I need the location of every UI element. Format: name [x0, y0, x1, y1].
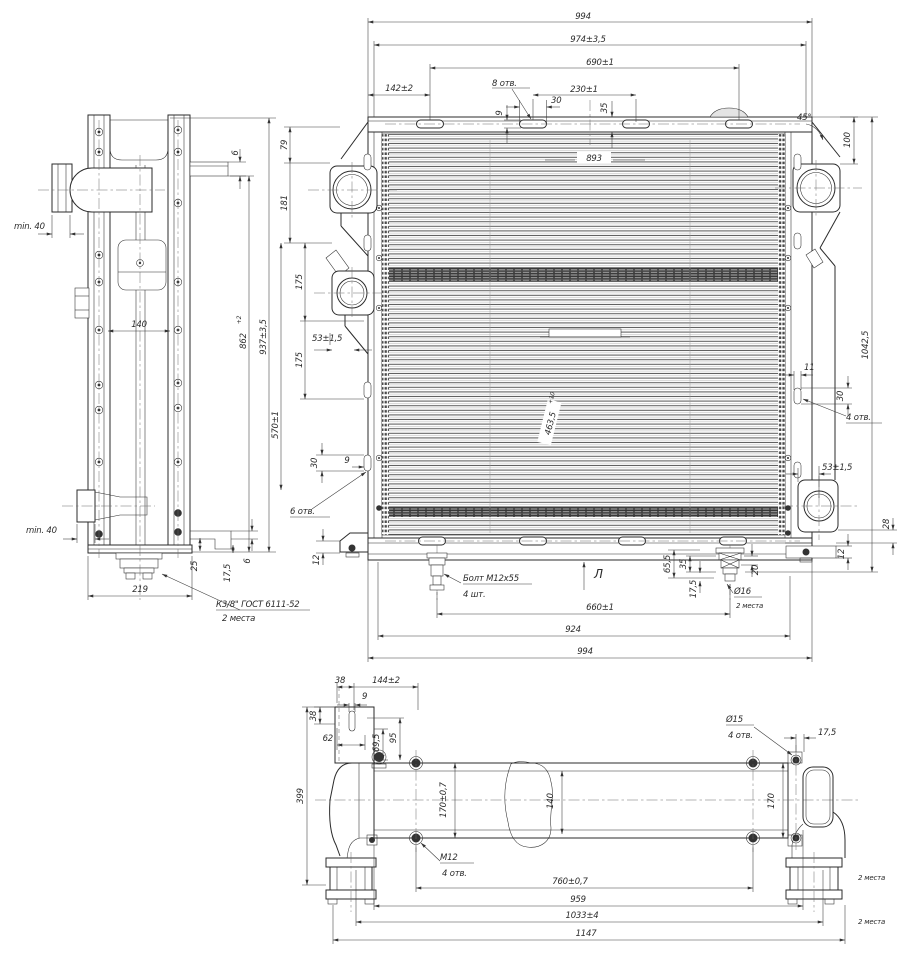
note-4-holes: 4 отв. — [846, 413, 871, 423]
note-bolt: Болт М12х55 — [463, 574, 519, 584]
dim-690: 690±1 — [586, 58, 614, 68]
note-6-holes: 6 отв. — [290, 507, 315, 517]
dim-142: 142±2 — [385, 84, 413, 94]
dim-1147: 1147 — [576, 929, 598, 939]
dim-175-b: 175 — [295, 352, 305, 368]
dim-6-bottom: 6 — [243, 558, 253, 564]
dim-6-top: 6 — [231, 150, 241, 156]
side-view-top-bracket — [190, 162, 228, 176]
bottom-view-bolts — [410, 750, 760, 852]
note-m12-holes: 4 отв. — [442, 869, 467, 879]
angled-tab — [806, 249, 823, 268]
dim-35-bottom: 35 — [679, 559, 689, 569]
dim-12-left: 12 — [312, 555, 322, 565]
dim-9-left: 9 — [344, 456, 349, 466]
dim-30-slot: 30 — [551, 96, 561, 106]
note-dia15-holes: 4 отв. — [728, 731, 753, 741]
dim-170-left: 170±0,7 — [439, 781, 449, 817]
dim-140-bv: 140 — [546, 793, 556, 809]
front-view-right-brackets — [775, 122, 862, 562]
note-2-places-a: 2 места — [858, 874, 885, 882]
side-view-top-pipe — [52, 164, 152, 212]
dim-140: 140 — [131, 320, 147, 330]
drawing-sheet: min. 40 6 140 862 +2 937±3,5 min. 40 25 … — [0, 0, 900, 965]
dim-38-a: 38 — [335, 676, 346, 686]
dim-144: 144±2 — [372, 676, 400, 686]
dim-660: 660±1 — [586, 603, 614, 613]
dim-30-left: 30 — [310, 458, 320, 468]
dim-219: 219 — [132, 585, 148, 595]
dim-570: 570±1 — [271, 411, 281, 439]
dim-12-right: 12 — [837, 549, 847, 559]
dim-1042: 1042,5 — [861, 331, 871, 360]
note-2-places-drain: 2 места — [736, 602, 763, 610]
side-view-bottom-bracket — [190, 531, 231, 549]
dim-924: 924 — [565, 625, 581, 635]
dim-95: 95 — [389, 733, 399, 743]
side-view-mid-panel — [118, 240, 166, 290]
dim-9-bv: 9 — [362, 692, 367, 702]
dim-937: 937±3,5 — [259, 319, 269, 354]
dim-175-a: 175 — [295, 274, 305, 290]
dim-53-right: 53±1,5 — [822, 463, 852, 473]
dim-862: 862 — [239, 333, 249, 349]
dim-min40-bottom: min. 40 — [26, 526, 57, 536]
note-8-holes: 8 отв. — [492, 79, 517, 89]
dim-399: 399 — [296, 788, 306, 804]
dim-11: 11 — [804, 363, 814, 373]
dim-862-tol: +2 — [236, 315, 243, 324]
dim-100: 100 — [843, 132, 853, 148]
front-right-foot — [786, 546, 836, 558]
dim-994-bottom: 994 — [577, 647, 593, 657]
core-center-plate — [549, 329, 621, 337]
dim-62: 62 — [323, 734, 333, 744]
core-dense-band-upper — [389, 268, 778, 281]
dim-min40-top: min. 40 — [14, 222, 45, 232]
dim-25: 25 — [190, 561, 200, 571]
dim-79: 79 — [280, 140, 290, 150]
dim-45-deg: 45° — [797, 113, 811, 123]
note-bolt-qty: 4 шт. — [463, 590, 486, 600]
front-view-top-slots — [385, 108, 800, 128]
bottom-view-left-pipe — [326, 763, 376, 912]
dim-17-5: 17,5 — [223, 564, 233, 582]
dim-230: 230±1 — [570, 85, 598, 95]
dim-69-5: 69,5 — [372, 734, 382, 752]
dim-35-plate: 35 — [600, 103, 610, 113]
radiator-technical-drawing: min. 40 6 140 862 +2 937±3,5 min. 40 25 … — [0, 0, 900, 965]
dim-17-5-bottom: 17,5 — [689, 580, 699, 598]
dim-30-right: 30 — [836, 391, 846, 401]
front-view: 994 974±3,5 690±1 142±2 8 отв. 30 9 230±… — [271, 12, 897, 662]
note-m12: М12 — [440, 853, 458, 863]
view-label-L: Л — [593, 567, 603, 581]
front-view-core — [382, 100, 785, 535]
dim-38-b: 38 — [309, 710, 319, 721]
note-thread-places: 2 места — [222, 614, 255, 624]
core-dense-band-lower — [389, 507, 778, 517]
dim-974: 974±3,5 — [570, 35, 605, 45]
side-view-mid-stub — [75, 288, 89, 318]
dim-65-5: 65,5 — [663, 555, 673, 573]
note-2-places-b: 2 места — [858, 918, 885, 926]
dim-1033: 1033±4 — [566, 911, 599, 921]
dim-20: 20 — [751, 565, 761, 575]
filler-boss — [710, 108, 748, 117]
dim-17-5-bv: 17,5 — [818, 728, 836, 738]
dim-959: 959 — [570, 895, 586, 905]
dim-181: 181 — [280, 195, 290, 211]
side-view-drain-fitting — [116, 553, 162, 579]
bottom-view-right-end — [786, 745, 845, 912]
dim-994-top: 994 — [575, 12, 591, 22]
dim-9-slot: 9 — [495, 110, 505, 115]
dim-893: 893 — [586, 154, 602, 164]
dim-760: 760±0,7 — [552, 877, 588, 887]
dim-53-left: 53±1,5 — [312, 334, 342, 344]
dim-28: 28 — [882, 518, 892, 529]
side-view: min. 40 6 140 862 +2 937±3,5 min. 40 25 … — [14, 115, 310, 624]
bottom-view: 38 144±2 9 38 62 69,5 95 399 170±0,7 140… — [296, 676, 885, 944]
dim-dia15: Ø15 — [725, 714, 743, 725]
dim-170-right: 170 — [767, 793, 777, 809]
dim-dia16: Ø16 — [733, 586, 752, 597]
